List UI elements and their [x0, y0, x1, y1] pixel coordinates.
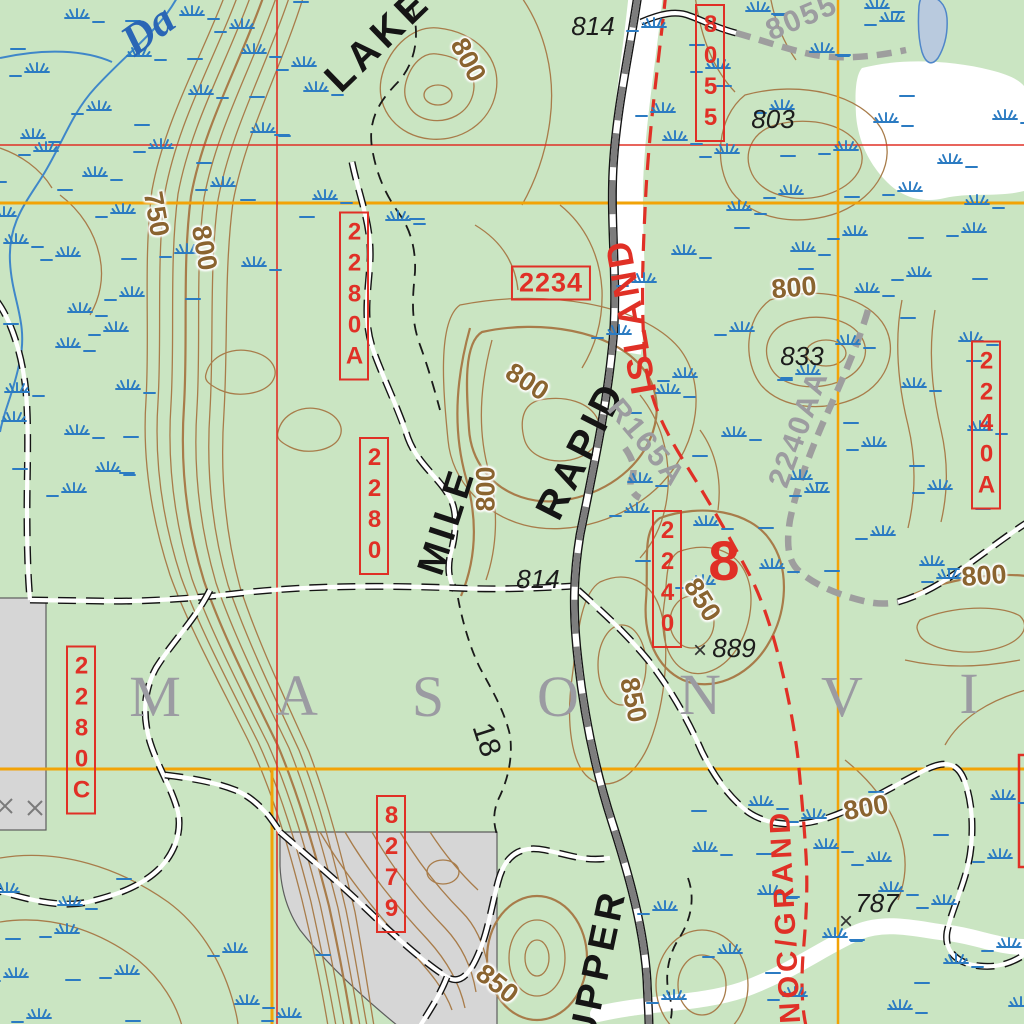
- marsh-tuft-icon: [65, 425, 104, 438]
- marsh-tuft-icon: [41, 247, 80, 260]
- marsh-tuft-icon: [83, 167, 122, 180]
- topographic-map-canvas[interactable]: 805522342280A228022402240A2280C8279LAKER…: [0, 0, 1024, 1024]
- marsh-tuft-icon: [116, 380, 155, 393]
- marsh-tuft-icon: [973, 849, 1012, 862]
- marsh-tuft-icon: [693, 842, 732, 855]
- contour-elevation-label: 800: [770, 273, 817, 304]
- marsh-tuft-icon: [242, 44, 281, 57]
- road-number-label: 2234: [511, 266, 591, 301]
- contour-line: [917, 608, 1024, 652]
- marsh-tuft-icon: [828, 226, 867, 239]
- marsh-tuft-icon: [277, 57, 316, 70]
- contour-elevation-label: 750: [139, 189, 173, 238]
- marsh-tuft-icon: [40, 924, 79, 937]
- marsh-tuft-icon: [96, 204, 135, 217]
- marsh-tuft-icon: [19, 142, 58, 155]
- contour-line: [424, 85, 452, 105]
- marsh-tuft-icon: [180, 6, 219, 19]
- town-name-letter: O: [537, 668, 579, 726]
- road-number-label: 2280C: [66, 646, 96, 815]
- marsh-tuft-icon: [852, 852, 891, 865]
- trail-dashed: [458, 598, 511, 838]
- marsh-tuft-icon: [47, 483, 86, 496]
- contour-elevation-label: 800: [187, 223, 221, 272]
- spot-elevation-label: 833: [780, 343, 823, 369]
- contour-line: [931, 310, 946, 522]
- town-name-letter: A: [276, 667, 318, 725]
- contour-line: [845, 760, 905, 900]
- section-number-label: 8: [708, 533, 739, 589]
- road-line: [30, 586, 574, 601]
- road-number-label: 8055: [695, 4, 725, 142]
- marsh-tuft-icon: [386, 211, 425, 224]
- marsh-tuft-icon: [865, 0, 904, 12]
- marsh-tuft-icon: [920, 556, 959, 569]
- town-name-letter: M: [129, 668, 181, 726]
- road-line: [736, 33, 906, 57]
- marsh-tuft-icon: [722, 427, 761, 440]
- marsh-tuft-icon: [892, 267, 931, 280]
- marsh-tuft-icon: [1009, 997, 1024, 1010]
- marsh-tuft-icon: [638, 901, 677, 914]
- contour-line: [0, 148, 52, 188]
- marsh-tuft-icon: [12, 1009, 51, 1022]
- town-name-letter: V: [821, 668, 863, 726]
- road-number-label: 2240: [652, 510, 682, 648]
- marsh-tuft-icon: [242, 257, 281, 270]
- marsh-tuft-icon: [700, 144, 739, 157]
- marsh-tuft-icon: [847, 437, 886, 450]
- marsh-tuft-icon: [855, 283, 894, 296]
- marsh-tuft-icon: [658, 368, 697, 381]
- marsh-tuft-icon: [749, 796, 788, 809]
- contour-elevation-label: 800: [473, 466, 500, 511]
- marsh-tuft-icon: [694, 516, 733, 529]
- open-area-patches: [598, 0, 1024, 1014]
- road-line: [0, 300, 30, 600]
- marsh-tuft-icon: [56, 338, 95, 351]
- marsh-tuft-icon: [947, 223, 986, 236]
- contour-elevation-label: 800: [961, 561, 1008, 591]
- map-graphics-layer: [0, 0, 1024, 1024]
- spot-elevation-label: 814: [516, 566, 559, 592]
- spot-elevation-mark: ×: [839, 910, 853, 934]
- marsh-tuft-icon: [313, 190, 352, 203]
- spot-elevation-label: 889: [712, 635, 755, 661]
- marsh-tuft-icon: [65, 9, 104, 22]
- spot-elevation-mark: ×: [693, 639, 707, 663]
- marsh-tuft-icon: [715, 322, 754, 335]
- contour-line: [525, 940, 549, 976]
- marsh-tuft-icon: [672, 245, 711, 258]
- marsh-tuft-icon: [888, 1000, 927, 1013]
- contour-line: [945, 690, 1024, 745]
- spot-elevation-label: 814: [571, 13, 614, 39]
- town-name-letter: S: [412, 668, 444, 726]
- marsh-tuft-icon: [235, 995, 274, 1008]
- marsh-tuft-icon: [703, 944, 742, 957]
- contour-line: [898, 300, 914, 528]
- marsh-tuft-icon: [262, 1008, 301, 1021]
- stream-branch: [0, 52, 112, 62]
- pond-water: [918, 0, 947, 63]
- marsh-tuft-icon: [89, 322, 128, 335]
- marsh-tuft-icon: [100, 965, 139, 978]
- marsh-tuft-icon: [814, 839, 853, 852]
- contour-line: [457, 328, 474, 596]
- road-number-label: 2240A: [971, 341, 1001, 510]
- spot-elevation-label: 787: [855, 890, 898, 916]
- contour-line: [206, 350, 276, 394]
- marsh-tuft-icon: [10, 63, 49, 76]
- marsh-tuft-icon: [105, 287, 144, 300]
- spot-elevation-label: 803: [751, 106, 794, 132]
- contour-line: [278, 408, 342, 451]
- marsh-tuft-icon: [68, 303, 107, 316]
- marsh-tuft-icon: [902, 378, 941, 391]
- marsh-tuft-icon: [856, 526, 895, 539]
- road-number-label-partial: [1019, 755, 1024, 867]
- road-number-label: 8279: [376, 795, 406, 933]
- contour-line: [60, 195, 102, 315]
- marsh-tuft-icon: [917, 895, 956, 908]
- marsh-tuft-icon: [0, 207, 16, 220]
- contour-line: [700, 430, 719, 510]
- road-number-label: 2280A: [339, 212, 369, 381]
- marsh-tuft-icon: [610, 503, 649, 516]
- marsh-tuft-icon: [196, 177, 235, 190]
- marsh-tuft-icon: [791, 242, 830, 255]
- contour-line: [481, 340, 495, 580]
- town-name-letter: I: [959, 665, 978, 723]
- contour-line: [0, 920, 182, 1024]
- marsh-tuft-icon: [865, 12, 904, 25]
- contour-line: [0, 855, 238, 1024]
- marsh-tuft-icon: [0, 968, 28, 981]
- marsh-tuft-icon: [21, 129, 60, 142]
- marsh-tuft-icon: [215, 19, 254, 32]
- road-number-label: 2280: [359, 437, 389, 575]
- town-name-letter: N: [679, 666, 721, 724]
- contour-line: [520, 0, 552, 205]
